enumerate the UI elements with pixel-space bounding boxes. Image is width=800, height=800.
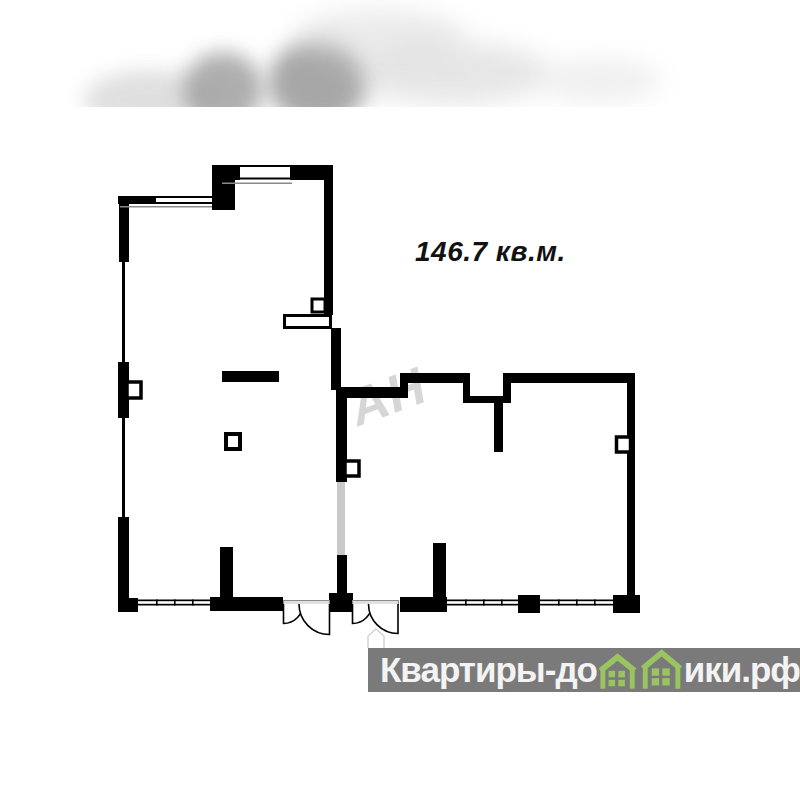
area-label: 146.7 кв.м. bbox=[415, 236, 566, 268]
logo-house-icon bbox=[598, 647, 683, 693]
screenshot-root: АН bbox=[0, 0, 800, 800]
walls bbox=[118, 165, 640, 613]
door-swing-arc bbox=[299, 604, 330, 635]
removed-wall-segment bbox=[337, 482, 345, 555]
window-lines bbox=[138, 165, 613, 606]
faint-house-outline-icon bbox=[364, 626, 390, 650]
footer-logo-band: Квартиры-до ики.рф bbox=[368, 648, 800, 692]
logo-text-before: Квартиры-до bbox=[380, 648, 597, 692]
logo-text-after: ики.рф bbox=[684, 648, 800, 692]
